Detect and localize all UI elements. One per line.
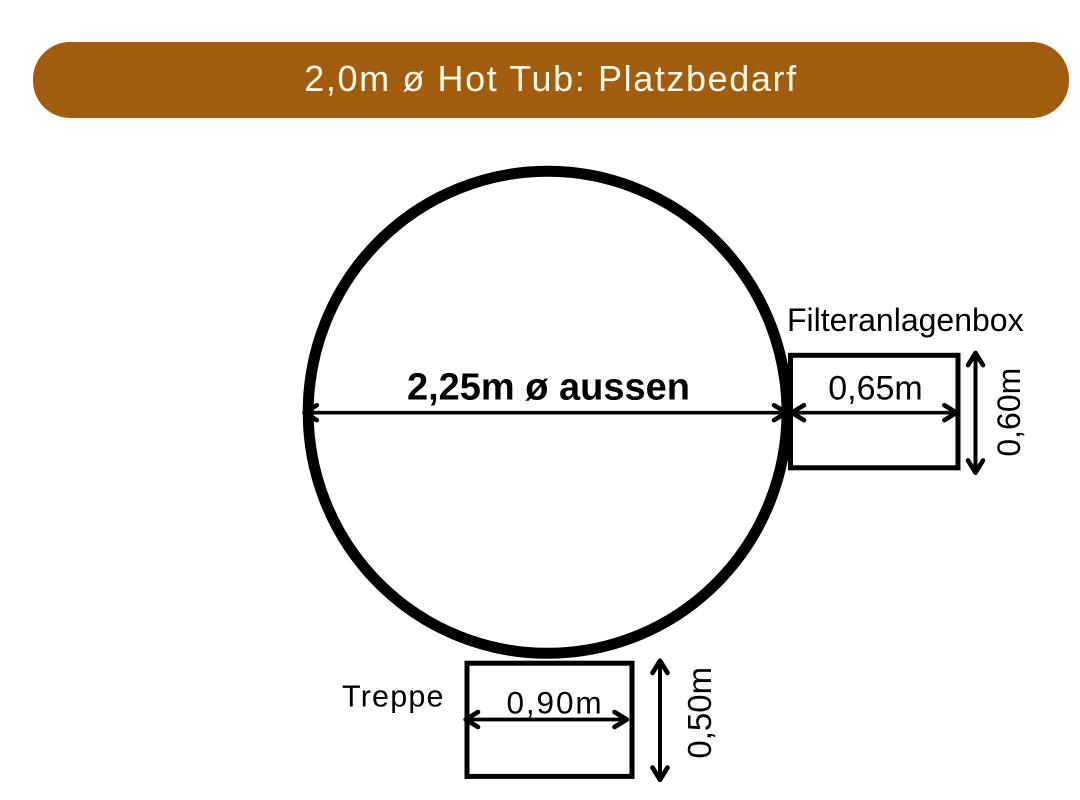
svg-text:0,60m: 0,60m xyxy=(991,368,1027,457)
svg-text:Treppe: Treppe xyxy=(342,680,445,714)
svg-text:0,90m: 0,90m xyxy=(506,684,603,720)
svg-text:0,50m: 0,50m xyxy=(681,667,718,759)
svg-text:0,65m: 0,65m xyxy=(828,370,923,408)
svg-text:Filteranlagenbox: Filteranlagenbox xyxy=(787,302,1024,338)
svg-text:2,25m ø aussen: 2,25m ø aussen xyxy=(407,367,690,409)
svg-text:2,0m ø Hot Tub: Platzbedarf: 2,0m ø Hot Tub: Platzbedarf xyxy=(304,58,797,99)
